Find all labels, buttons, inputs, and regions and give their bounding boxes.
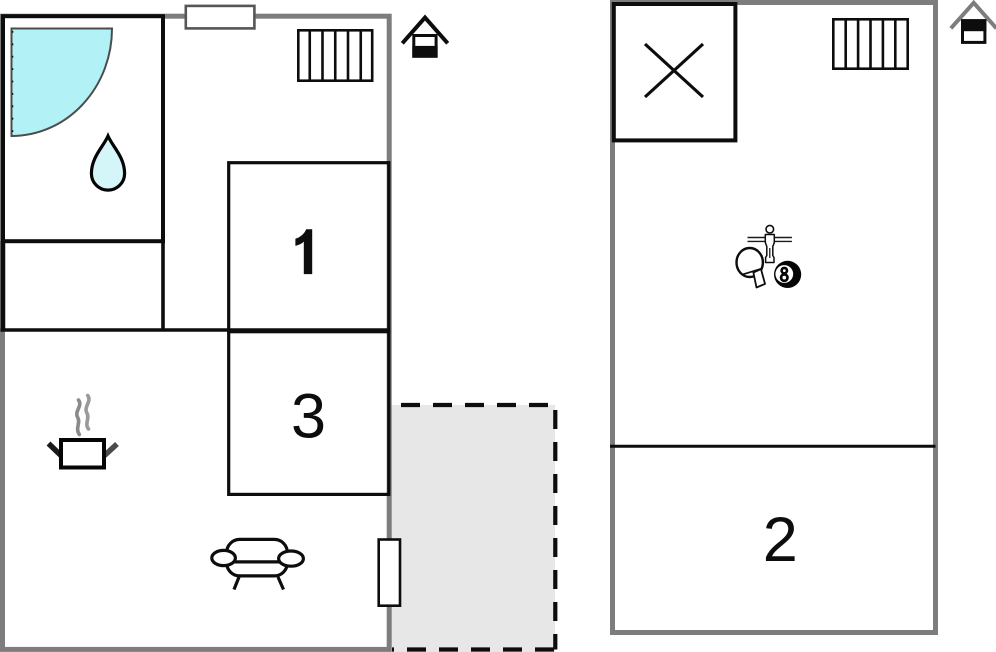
svg-text:2: 2 xyxy=(763,505,798,575)
svg-text:3: 3 xyxy=(291,382,326,452)
